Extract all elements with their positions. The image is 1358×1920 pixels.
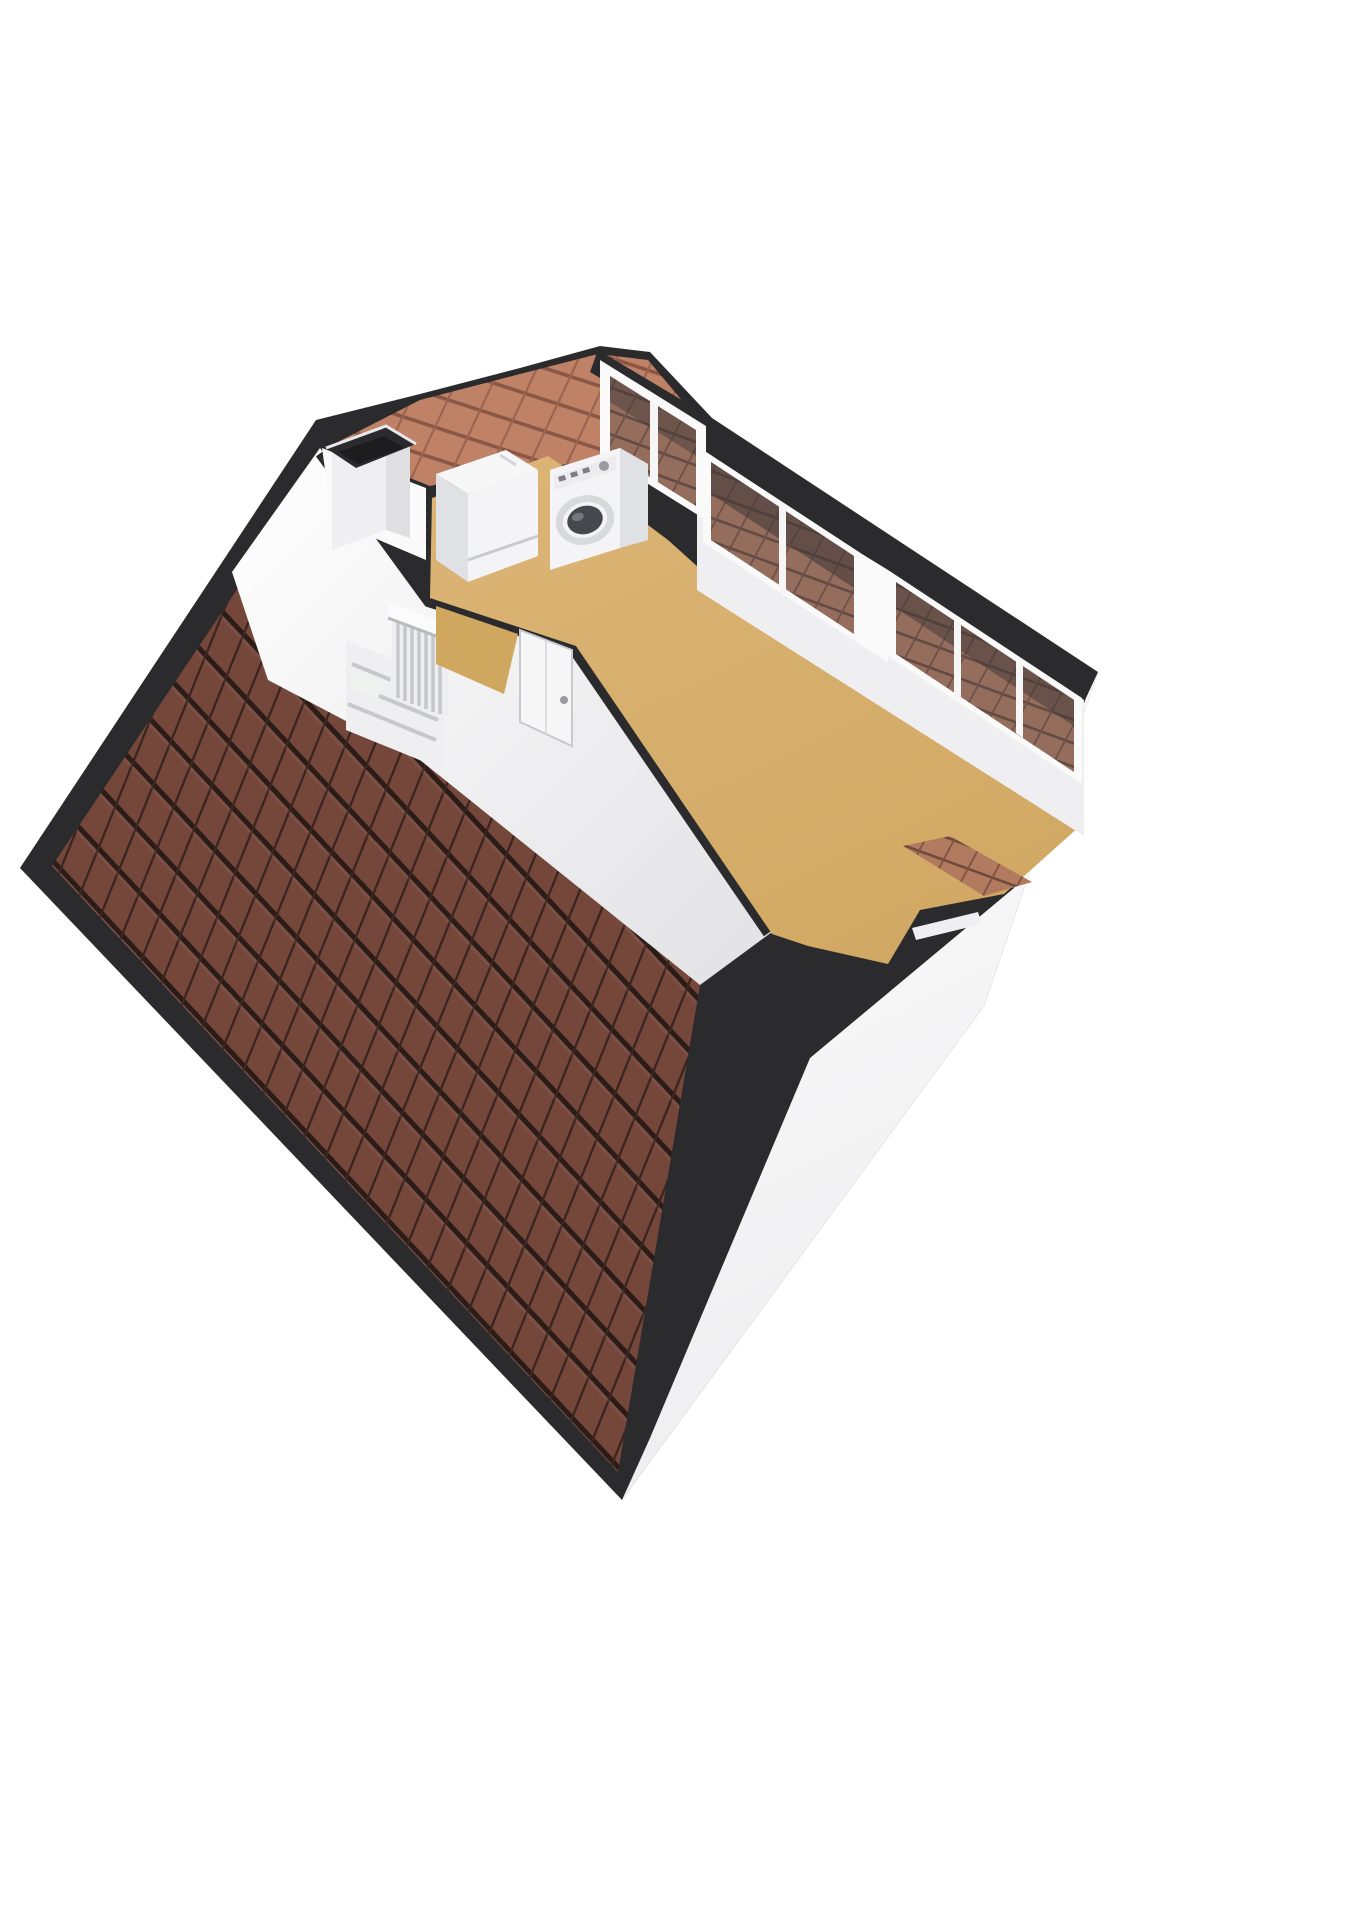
door-handle <box>560 696 568 704</box>
chimney <box>326 426 416 550</box>
floorplan-3d-render <box>0 0 1358 1920</box>
window-pier <box>862 554 888 662</box>
building <box>20 346 1098 1500</box>
floorplan-canvas <box>0 0 1358 1920</box>
